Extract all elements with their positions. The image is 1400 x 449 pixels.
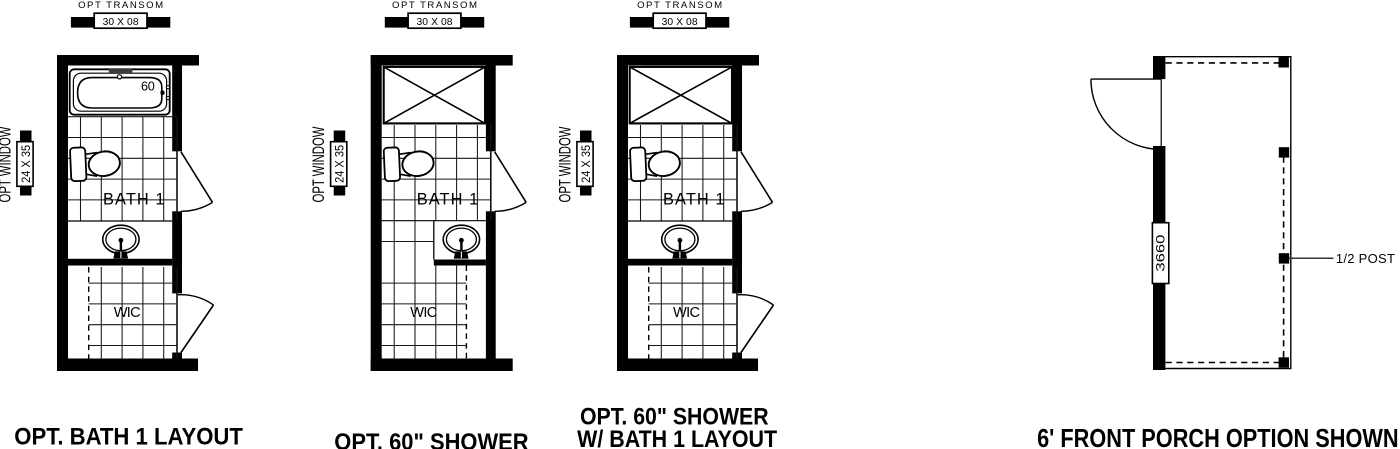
svg-text:BATH 1: BATH 1: [103, 191, 165, 209]
svg-text:60: 60: [141, 79, 155, 93]
svg-text:3660: 3660: [1153, 234, 1167, 272]
svg-text:24 X 35: 24 X 35: [19, 145, 33, 183]
svg-text:WIC: WIC: [114, 305, 141, 321]
svg-text:WIC: WIC: [673, 305, 700, 321]
svg-text:30 X 08: 30 X 08: [103, 17, 139, 28]
svg-text:OPT. 60" SHOWER: OPT. 60" SHOWER: [334, 429, 528, 449]
svg-text:BATH 1: BATH 1: [663, 191, 725, 209]
svg-text:WIC: WIC: [410, 305, 437, 321]
svg-text:6' FRONT PORCH OPTION SHOWN: 6' FRONT PORCH OPTION SHOWN: [1037, 425, 1399, 449]
svg-text:1/2 POST: 1/2 POST: [1336, 251, 1395, 266]
svg-text:30 X 08: 30 X 08: [417, 17, 453, 28]
svg-text:24 X 35: 24 X 35: [333, 145, 347, 183]
svg-text:OPT WINDOW: OPT WINDOW: [0, 126, 14, 202]
svg-text:30 X 08: 30 X 08: [662, 17, 698, 28]
svg-text:W/ BATH 1 LAYOUT: W/ BATH 1 LAYOUT: [577, 426, 777, 449]
svg-text:OPT. BATH 1 LAYOUT: OPT. BATH 1 LAYOUT: [14, 423, 243, 449]
svg-text:OPT WINDOW: OPT WINDOW: [310, 126, 328, 202]
svg-text:OPT WINDOW: OPT WINDOW: [556, 126, 574, 202]
svg-text:BATH 1: BATH 1: [417, 191, 479, 209]
svg-text:24 X 35: 24 X 35: [579, 145, 593, 183]
